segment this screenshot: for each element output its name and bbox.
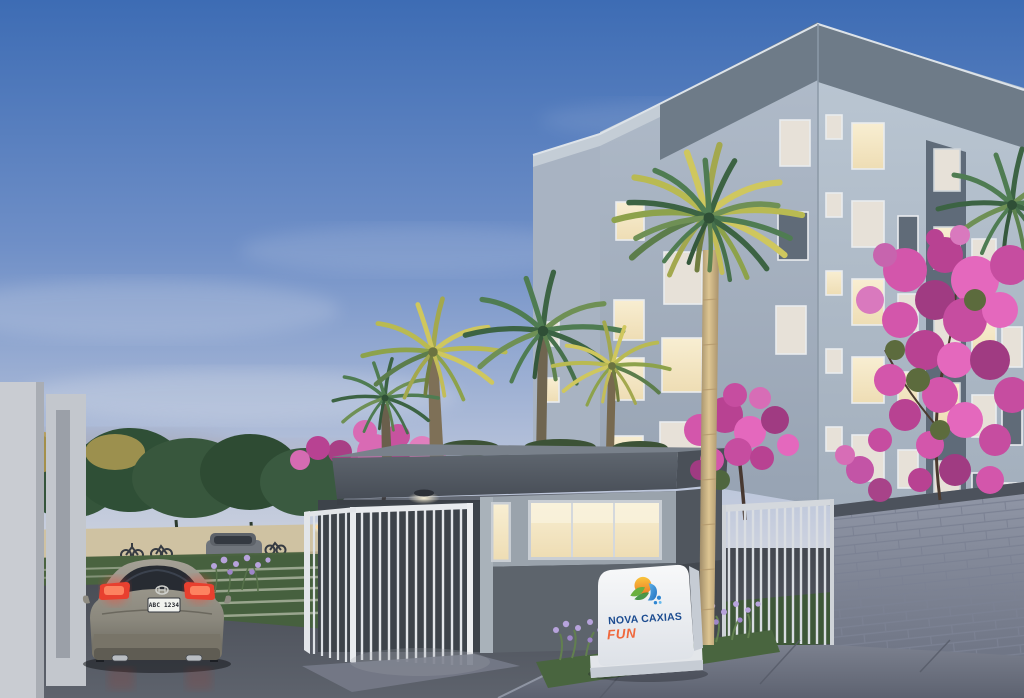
sign-body: [598, 565, 694, 666]
dusk-condo-entrance-render: NOVA CAXIAS FUN ABC 1234: [0, 0, 1024, 698]
exhaust-right: [186, 655, 202, 661]
license-plate: [148, 598, 180, 612]
gatehouse-narrow-window: [491, 502, 511, 562]
vehicle-gate-post: [0, 382, 86, 698]
render-canvas: [0, 0, 1024, 698]
downlight-fixture: [414, 490, 434, 497]
exhaust-left: [112, 655, 128, 661]
monument-sign: [588, 565, 708, 682]
gatehouse-window: [528, 500, 662, 560]
